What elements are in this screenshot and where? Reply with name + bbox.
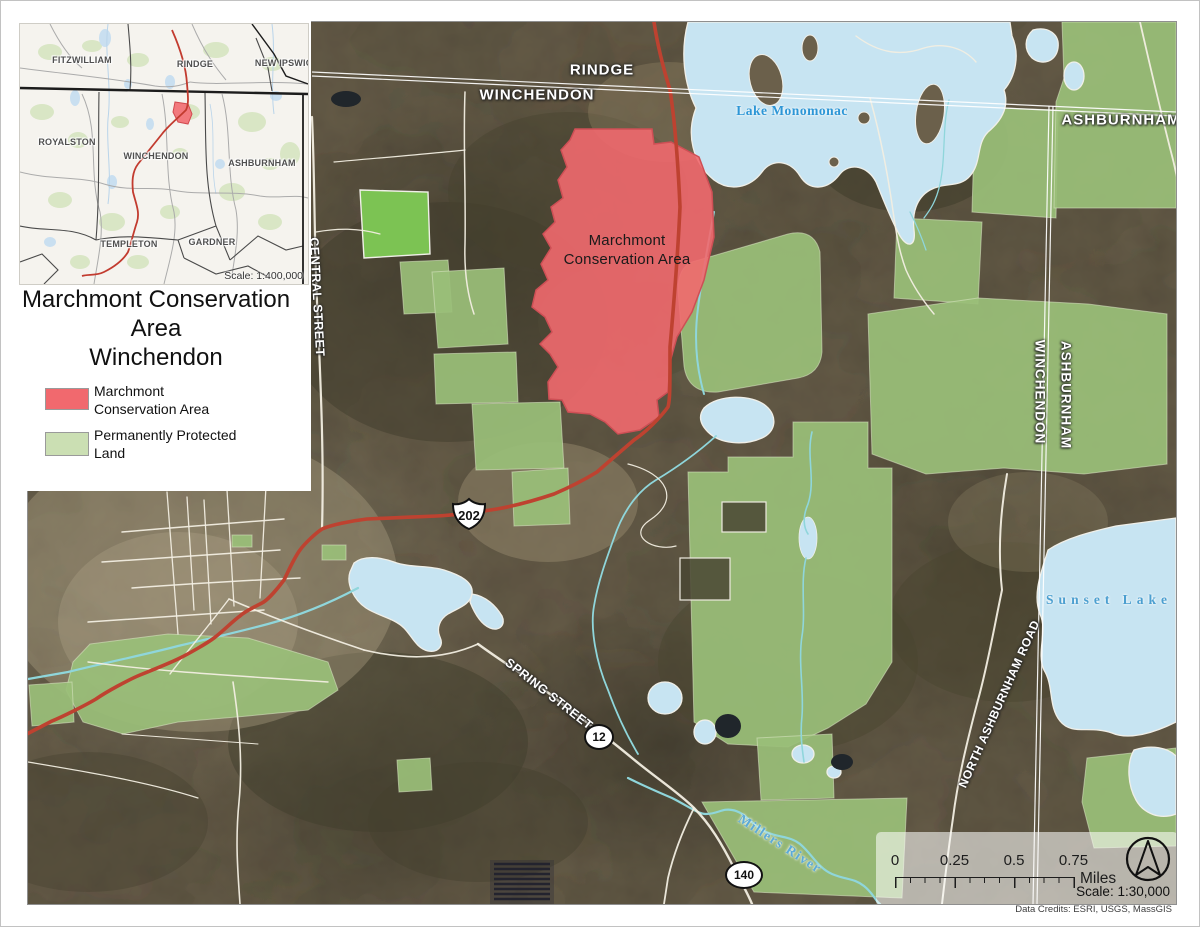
map-scale-text: Scale: 1:30,000	[1076, 884, 1170, 899]
inset-town-royalston: ROYALSTON	[38, 137, 95, 147]
scalebar-tick-0: 0	[891, 852, 899, 869]
data-credits: Data Credits: ESRI, USGS, MassGIS	[1015, 904, 1172, 915]
sunset-lake-label: Sunset Lake	[1046, 592, 1172, 608]
north-arrow-icon	[1124, 835, 1172, 883]
inset-town-ashburnham: ASHBURNHAM	[228, 158, 296, 168]
conservation-area-label: Marchmont Conservation Area	[542, 231, 712, 269]
route-12-shield: 12	[584, 724, 614, 750]
scalebar-panel: 0 0.25 0.5 0.75 Miles Scale: 1:30,000	[876, 832, 1177, 905]
inset-scale-text: Scale: 1:400,000	[224, 270, 303, 282]
inset-town-templeton: TEMPLETON	[100, 239, 157, 249]
boundary-label-ashburnham: ASHBURNHAM	[1059, 341, 1074, 449]
map-title: Marchmont Conservation Area Winchendon	[6, 285, 306, 372]
us-202-shield: 202	[450, 497, 488, 531]
boundary-label-winchendon: WINCHENDON	[1033, 340, 1048, 445]
town-label-rindge: RINDGE	[570, 62, 634, 79]
legend-label-protected: Permanently Protected Land	[94, 426, 236, 462]
scalebar-tick-05: 0.5	[1004, 852, 1025, 869]
town-label-ashburnham: ASHBURNHAM	[1061, 112, 1177, 129]
inset-town-fitzwilliam: FITZWILLIAM	[52, 55, 112, 65]
solar-farm	[490, 860, 554, 904]
legend-swatch-protected	[45, 432, 89, 456]
title-panel: FITZWILLIAM RINDGE NEW IPSWICH ROYALSTON…	[1, 1, 311, 491]
route-140-shield: 140	[725, 861, 763, 889]
inset-town-winchendon: WINCHENDON	[124, 151, 189, 161]
inset-town-gardner: GARDNER	[189, 237, 236, 247]
bright-field	[360, 190, 430, 258]
inset-town-rindge: RINDGE	[177, 59, 213, 69]
legend-item-protected: Permanently Protected Land	[45, 428, 236, 462]
scalebar-tick-075: 0.75	[1059, 852, 1088, 869]
lake-monomonac-label: Lake Monomonac	[736, 103, 848, 119]
scalebar-major-ticks	[895, 878, 1075, 888]
scalebar-tick-025: 0.25	[940, 852, 969, 869]
inset-locator-map: FITZWILLIAM RINDGE NEW IPSWICH ROYALSTON…	[19, 23, 309, 285]
town-label-winchendon: WINCHENDON	[480, 87, 595, 104]
map-document: RINDGE WINCHENDON ASHBURNHAM WINCHENDON …	[0, 0, 1200, 927]
inset-town-new-ipswich: NEW IPSWICH	[255, 58, 309, 68]
legend-swatch-conservation	[45, 388, 89, 410]
legend-item-conservation: Marchmont Conservation Area	[45, 384, 209, 418]
legend-label-conservation: Marchmont Conservation Area	[94, 382, 209, 418]
